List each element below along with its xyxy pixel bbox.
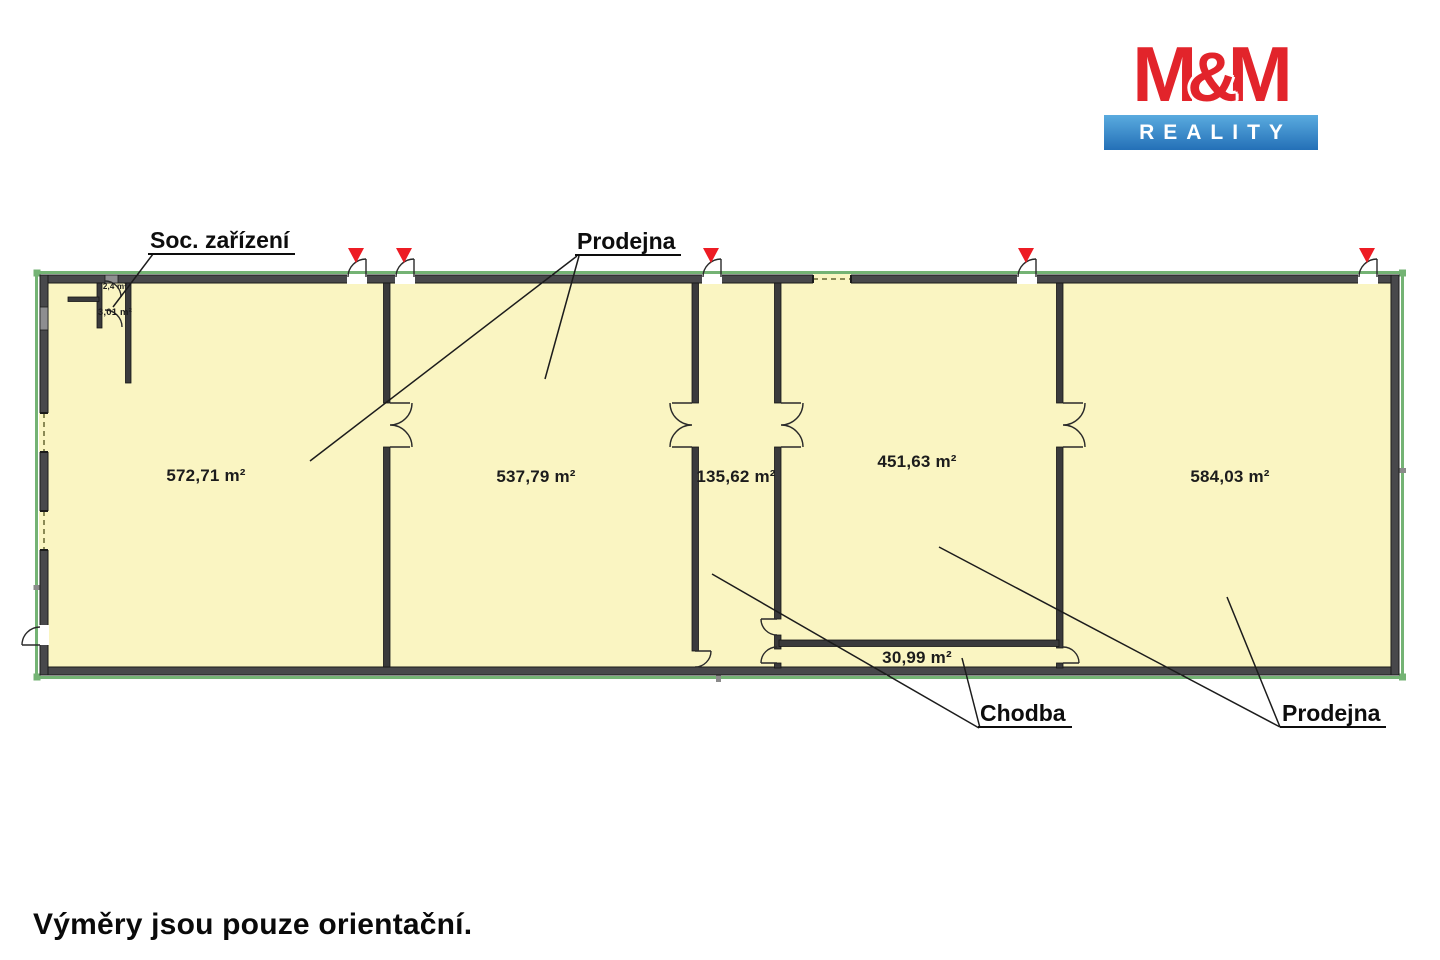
logo-reality-band: REALITY [1104,115,1318,150]
disclaimer-note: Výměry jsou pouze orientační. [33,908,472,942]
logo-mm-text: M&M [1104,38,1318,113]
entrance-marker-icons [348,248,1375,263]
room-area-label: 2,4 m² [103,282,127,291]
entrance-door-arcs [348,259,1377,277]
room-area-label: 3,01 m² [98,307,132,318]
room-area-label: 584,03 m² [1190,467,1269,487]
callout-soc-zarizeni: Soc. zařízení [148,228,295,255]
room-area-label: 451,63 m² [877,452,956,472]
brand-logo: M&M REALITY [1104,38,1318,150]
floor-plan-page: Soc. zařízení Prodejna Chodba Prodejna 5… [0,0,1440,960]
callout-prodejna-top: Prodejna [575,229,681,256]
room-area-label: 537,79 m² [496,467,575,487]
logo-ampersand: & [1187,38,1235,116]
callout-prodejna-bottom: Prodejna [1280,701,1386,728]
room-area-label: 30,99 m² [882,648,952,668]
callout-chodba: Chodba [978,701,1072,728]
room-area-label: 572,71 m² [166,466,245,486]
room-area-label: 135,62 m² [696,467,775,487]
